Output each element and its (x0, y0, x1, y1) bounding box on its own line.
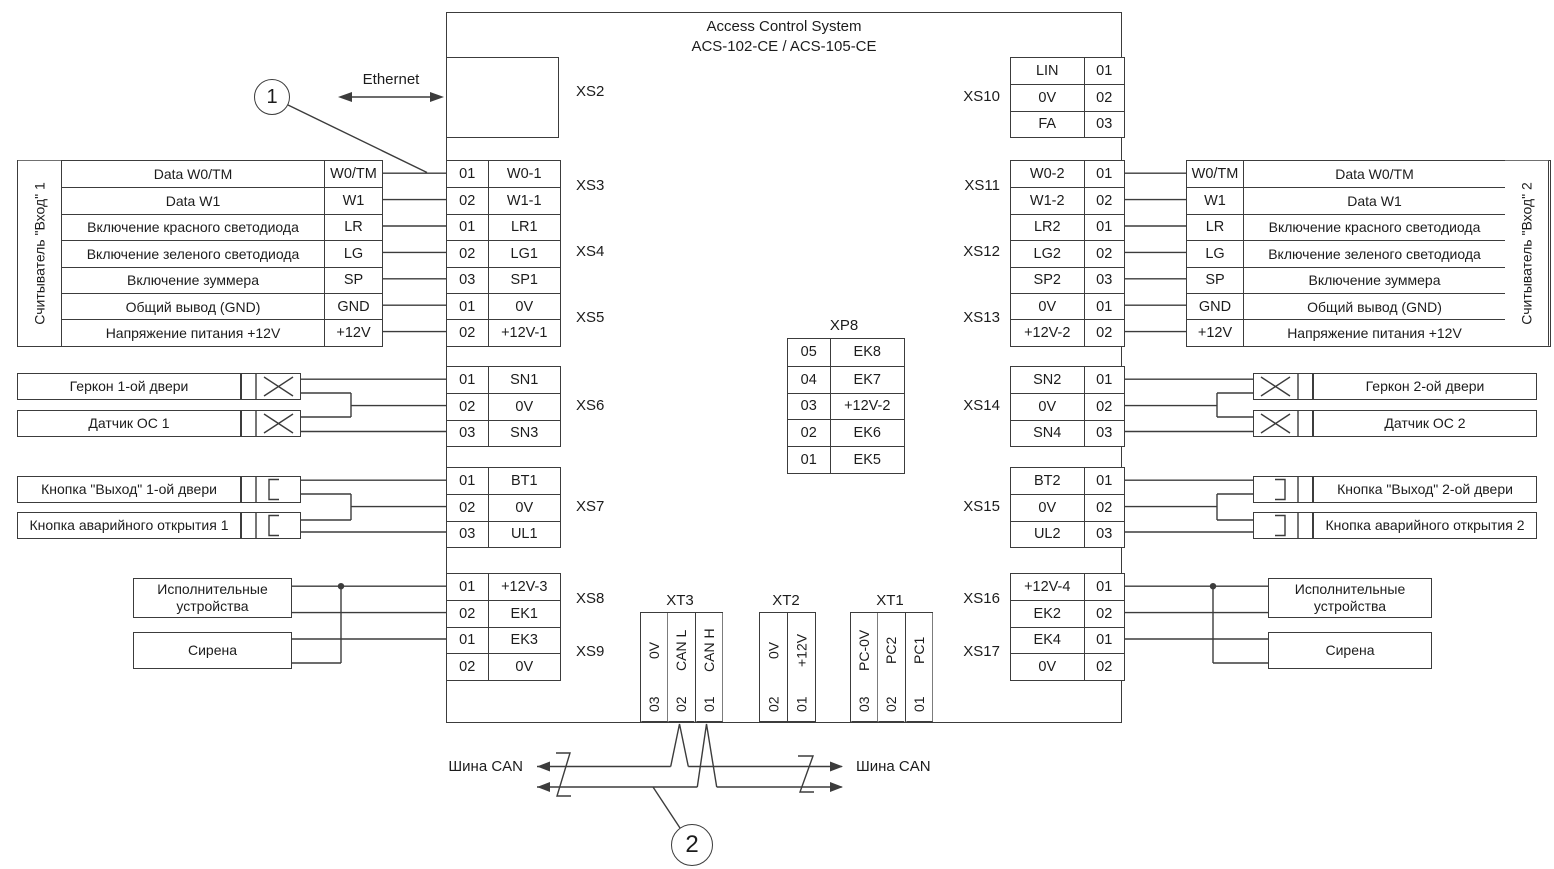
device-box-gerkon: Геркон 2-ой двери (1313, 373, 1537, 400)
device-box-emergency-btn: Кнопка аварийного открытия 2 (1313, 512, 1537, 539)
pin-cell: 02 (788, 420, 830, 446)
reader-row: Включение зеленого светодиодаLG (62, 240, 382, 266)
pin-cell: 03 (447, 268, 488, 293)
signal-cell: 0V (488, 394, 561, 419)
connector-row: 01EK3 (447, 627, 560, 653)
pin-cell: 01 (1084, 628, 1125, 653)
connector-table-xs6: 01SN1020V03SN3 (446, 366, 561, 447)
signal-cell: EK7 (830, 367, 905, 393)
connector-row: 020V (447, 393, 560, 419)
reader-row: W1Data W1 (1187, 187, 1505, 213)
signal-cell: BT2 (1011, 468, 1084, 494)
signal-cell: EK1 (488, 601, 561, 626)
reader-desc-cell: Data W1 (62, 188, 324, 213)
pin-cell: 02 (1084, 241, 1125, 266)
signal-cell: 0V (1011, 294, 1084, 319)
pin-cell: 02 (1084, 654, 1125, 679)
title-line-1: Access Control System (584, 17, 984, 37)
signal-cell: +12V-1 (488, 320, 561, 345)
signal-cell: SN3 (488, 421, 561, 446)
device-box-datchik: Датчик ОС 1 (17, 410, 241, 437)
label-right_connectors-0-name: XS10 (963, 87, 1000, 107)
label-xp8-name: XP8 (764, 316, 924, 336)
signal-cell: W0-1 (488, 161, 561, 187)
signal-cell: W1-2 (1011, 188, 1084, 213)
reader-signal-cell: LR (324, 215, 382, 240)
xt-signal-cell: PC-0V (851, 613, 877, 687)
xt-signal-cell: PC1 (906, 613, 932, 687)
connector-row: LG202 (1011, 240, 1124, 266)
signal-cell: EK5 (830, 447, 905, 473)
connector-row: 02EK6 (788, 419, 904, 446)
reader-desc-cell: Включение красного светодиода (62, 215, 324, 240)
reader-desc-cell: Общий вывод (GND) (62, 294, 324, 319)
reader-signal-cell: +12V (324, 320, 382, 345)
signal-cell: SP1 (488, 268, 561, 293)
reader-signal-cell: W0/TM (1187, 161, 1243, 187)
pin-cell: 03 (788, 394, 830, 420)
signal-cell: 0V (1011, 394, 1084, 419)
signal-cell: EK3 (488, 628, 561, 653)
device-box-datchik: Датчик ОС 2 (1313, 410, 1537, 437)
label-left_connectors-0-name: XS3 (576, 176, 604, 196)
reader-signal-cell: W1 (1187, 188, 1243, 213)
pin-cell: 01 (447, 215, 488, 240)
reader-row: Напряжение питания +12V+12V (62, 319, 382, 345)
pin-cell: 05 (788, 339, 830, 366)
connector-row: 05EK8 (788, 339, 904, 366)
reader-row: Включение красного светодиодаLR (62, 214, 382, 240)
connector-row: 01SN1 (447, 367, 560, 393)
diagram-title: Access Control System ACS-102-CE / ACS-1… (584, 17, 984, 57)
reader-desc-cell: Data W0/TM (62, 161, 324, 187)
pin-cell: 02 (447, 241, 488, 266)
signal-cell: +12V-2 (1011, 320, 1084, 345)
signal-cell: 0V (488, 294, 561, 319)
reader-desc-cell: Включение красного светодиода (1243, 215, 1505, 240)
label-xs2_label: XS2 (576, 82, 604, 102)
connector-row: 0V02 (1011, 653, 1124, 679)
signal-cell: 0V (1011, 495, 1084, 520)
reader-desc-cell: Data W1 (1243, 188, 1505, 213)
pin-cell: 01 (1084, 367, 1125, 393)
pin-cell: 02 (1084, 188, 1125, 213)
callout-1-number: 1 (266, 86, 277, 109)
connector-table-xs15: BT2010V02UL203 (1010, 467, 1125, 548)
xt-signal-cell: 0V (760, 613, 787, 687)
connector-table-xs10: LIN010V02FA03 (1010, 57, 1125, 138)
sensor-1-symbol-box (241, 410, 301, 437)
reader-signal-cell: SP (1187, 268, 1243, 293)
pin-cell: 03 (447, 421, 488, 446)
connector-row: 010V (447, 293, 560, 319)
connector-table-xp8: 05EK804EK703+12V-202EK601EK5 (787, 338, 905, 474)
label-ethernet_label: Ethernet (311, 70, 471, 90)
connector-row: 03SN3 (447, 420, 560, 446)
connector-row: 020V (447, 494, 560, 520)
label-can_bus_right: Шина CAN (856, 757, 931, 777)
xt-signal-cell: +12V (788, 613, 815, 687)
signal-cell: +12V-3 (488, 574, 561, 600)
label-xt-2-name: XT1 (810, 591, 970, 611)
signal-cell: 0V (488, 495, 561, 520)
label-can_bus_left: Шина CAN (448, 757, 523, 777)
sensor-2-symbol-box (1253, 410, 1313, 437)
reader-signal-cell: GND (1187, 294, 1243, 319)
reader-desc-cell: Напряжение питания +12V (1243, 320, 1505, 345)
connector-row: 02W1-1 (447, 187, 560, 213)
title-line-2: ACS-102-CE / ACS-105-CE (584, 37, 984, 57)
door-contact-1-symbol-box (241, 373, 301, 400)
pin-cell: 02 (1084, 495, 1125, 520)
reader-signal-cell: LR (1187, 215, 1243, 240)
connector-row: 03SP1 (447, 267, 560, 293)
pin-cell: 02 (447, 495, 488, 520)
door-contact-2-symbol-box (1253, 373, 1313, 400)
pin-cell: 03 (1084, 112, 1125, 137)
signal-cell: LR2 (1011, 215, 1084, 240)
label-right_connectors-7-name: XS17 (963, 642, 1000, 662)
xt-column: 0V02 (760, 613, 787, 722)
connector-table-xs8-xs9: 01+12V-302EK101EK3020V (446, 573, 561, 681)
label-right_connectors-2-name: XS12 (963, 242, 1000, 262)
signal-cell: UL1 (488, 522, 561, 547)
connector-row: UL203 (1011, 521, 1124, 547)
pin-cell: 03 (1084, 522, 1125, 547)
reader-table-1: Считыватель "Вход" 1Data W0/TMW0/TMData … (17, 160, 383, 347)
pin-cell: 02 (1084, 394, 1125, 419)
reader-row: Data W0/TMW0/TM (62, 161, 382, 187)
reader-desc-cell: Включение зеленого светодиода (1243, 241, 1505, 266)
signal-cell: LIN (1011, 58, 1084, 84)
signal-cell: SN4 (1011, 421, 1084, 446)
pin-cell: 01 (1084, 468, 1125, 494)
xt-pin-cell: 02 (668, 687, 694, 722)
xt-signal-cell: 0V (641, 613, 667, 687)
signal-cell: 0V (1011, 85, 1084, 110)
exit-button-2-symbol-box (1253, 476, 1313, 503)
reader-desc-cell: Включение зуммера (62, 268, 324, 293)
reader-row: Data W1W1 (62, 187, 382, 213)
connector-row: 0V02 (1011, 393, 1124, 419)
reader-desc-cell: Включение зуммера (1243, 268, 1505, 293)
xt-pin-cell: 01 (696, 687, 722, 722)
connector-row: +12V-401 (1011, 574, 1124, 600)
connector-row: BT201 (1011, 468, 1124, 494)
reader-row: GNDОбщий вывод (GND) (1187, 293, 1505, 319)
connector-row: 02EK1 (447, 600, 560, 626)
callout-2: 2 (671, 824, 713, 866)
exit-button-1-symbol-box (241, 476, 301, 503)
signal-cell: EK8 (830, 339, 905, 366)
emergency-button-2-symbol-box (1253, 512, 1313, 539)
reader-row: LGВключение зеленого светодиода (1187, 240, 1505, 266)
xt-signal-cell: CAN H (696, 613, 722, 687)
xt-table-xt2: 0V02+12V01 (759, 612, 816, 723)
device-box-actuators: Исполнительные устройства (133, 578, 292, 618)
device-box-exit-btn: Кнопка "Выход" 1-ой двери (17, 476, 241, 503)
connector-row: 04EK7 (788, 366, 904, 393)
pin-cell: 01 (447, 161, 488, 187)
connector-table-xs16-xs17: +12V-401EK202EK4010V02 (1010, 573, 1125, 681)
reader-desc-cell: Напряжение питания +12V (62, 320, 324, 345)
pin-cell: 01 (447, 294, 488, 319)
signal-cell: W0-2 (1011, 161, 1084, 187)
pin-cell: 03 (447, 522, 488, 547)
label-right_connectors-4-name: XS14 (963, 396, 1000, 416)
xt-pin-cell: 02 (760, 687, 787, 722)
xt-pin-cell: 01 (906, 687, 932, 722)
signal-cell: LG2 (1011, 241, 1084, 266)
pin-cell: 02 (1084, 601, 1125, 626)
reader-side-label: Считыватель "Вход" 2 (1505, 161, 1549, 346)
pin-cell: 01 (447, 367, 488, 393)
reader-row: W0/TMData W0/TM (1187, 161, 1505, 187)
callout-1: 1 (254, 79, 290, 115)
reader-signal-cell: GND (324, 294, 382, 319)
connector-row: LR201 (1011, 214, 1124, 240)
reader-rows: Data W0/TMW0/TMData W1W1Включение красно… (61, 161, 382, 346)
signal-cell: EK4 (1011, 628, 1084, 653)
wiring-diagram: Access Control System ACS-102-CE / ACS-1… (0, 0, 1554, 869)
device-box-actuators: Исполнительные устройства (1268, 578, 1432, 618)
reader-row: +12VНапряжение питания +12V (1187, 319, 1505, 345)
xt-pin-cell: 03 (851, 687, 877, 722)
connector-table-xs14: SN2010V02SN403 (1010, 366, 1125, 447)
connector-row: LIN01 (1011, 58, 1124, 84)
connector-row: 0V01 (1011, 293, 1124, 319)
reader-row: LRВключение красного светодиода (1187, 214, 1505, 240)
device-box-siren: Сирена (1268, 632, 1432, 669)
reader-row: Включение зуммераSP (62, 267, 382, 293)
xt-column: PC202 (877, 613, 904, 722)
reader-row: SPВключение зуммера (1187, 267, 1505, 293)
callout-2-number: 2 (685, 831, 698, 859)
connector-row: 0V02 (1011, 494, 1124, 520)
pin-cell: 02 (447, 188, 488, 213)
reader-table-2: W0/TMData W0/TMW1Data W1LRВключение крас… (1186, 160, 1551, 347)
reader-desc-cell: Общий вывод (GND) (1243, 294, 1505, 319)
device-box-gerkon: Геркон 1-ой двери (17, 373, 241, 400)
pin-cell: 02 (447, 320, 488, 345)
connector-row: 01EK5 (788, 446, 904, 473)
connector-row: 03UL1 (447, 521, 560, 547)
xt-column: CAN H01 (695, 613, 722, 722)
pin-cell: 01 (447, 628, 488, 653)
reader-side-label: Считыватель "Вход" 1 (18, 161, 61, 346)
signal-cell: BT1 (488, 468, 561, 494)
signal-cell: +12V-2 (830, 394, 905, 420)
connector-table-xs7: 01BT1020V03UL1 (446, 467, 561, 548)
reader-signal-cell: W1 (324, 188, 382, 213)
label-right_connectors-5-name: XS15 (963, 497, 1000, 517)
connector-row: EK401 (1011, 627, 1124, 653)
label-left_connectors-3-name: XS6 (576, 396, 604, 416)
pin-cell: 04 (788, 367, 830, 393)
xt-table-xt1: PC-0V03PC202PC101 (850, 612, 933, 723)
connector-row: 01+12V-3 (447, 574, 560, 600)
reader-signal-cell: LG (324, 241, 382, 266)
connector-row: 01W0-1 (447, 161, 560, 187)
signal-cell: 0V (1011, 654, 1084, 679)
reader-desc-cell: Data W0/TM (1243, 161, 1505, 187)
pin-cell: 01 (788, 447, 830, 473)
label-right_connectors-3-name: XS13 (963, 308, 1000, 328)
reader-signal-cell: W0/TM (324, 161, 382, 187)
connector-row: 02+12V-1 (447, 319, 560, 345)
signal-cell: 0V (488, 654, 561, 679)
connector-row: 03+12V-2 (788, 393, 904, 420)
pin-cell: 02 (1084, 320, 1125, 345)
xt-column: PC-0V03 (851, 613, 877, 722)
pin-cell: 01 (447, 468, 488, 494)
connector-row: 020V (447, 653, 560, 679)
label-left_connectors-1-name: XS4 (576, 242, 604, 262)
pin-cell: 01 (1084, 294, 1125, 319)
xt-column: PC101 (905, 613, 932, 722)
pin-cell: 02 (447, 654, 488, 679)
signal-cell: FA (1011, 112, 1084, 137)
connector-row: FA03 (1011, 111, 1124, 137)
signal-cell: UL2 (1011, 522, 1084, 547)
pin-cell: 02 (1084, 85, 1125, 110)
xt-pin-cell: 02 (878, 687, 904, 722)
pin-cell: 01 (1084, 58, 1125, 84)
signal-cell: +12V-4 (1011, 574, 1084, 600)
pin-cell: 01 (1084, 161, 1125, 187)
connector-row: 01BT1 (447, 468, 560, 494)
signal-cell: LG1 (488, 241, 561, 266)
signal-cell: SN1 (488, 367, 561, 393)
pin-cell: 01 (1084, 215, 1125, 240)
signal-cell: EK6 (830, 420, 905, 446)
connector-table-xs3-xs5: 01W0-102W1-101LR102LG103SP1010V02+12V-1 (446, 160, 561, 347)
connector-row: SP203 (1011, 267, 1124, 293)
connector-row: 01LR1 (447, 214, 560, 240)
xt-signal-cell: PC2 (878, 613, 904, 687)
xt-pin-cell: 03 (641, 687, 667, 722)
label-left_connectors-4-name: XS7 (576, 497, 604, 517)
signal-cell: LR1 (488, 215, 561, 240)
connector-table-xs11-xs13: W0-201W1-202LR201LG202SP2030V01+12V-202 (1010, 160, 1125, 347)
reader-signal-cell: +12V (1187, 320, 1243, 345)
pin-cell: 01 (1084, 574, 1125, 600)
emergency-button-1-symbol-box (241, 512, 301, 539)
connector-row: 0V02 (1011, 84, 1124, 110)
xt-signal-cell: CAN L (668, 613, 694, 687)
pin-cell: 03 (1084, 268, 1125, 293)
xt-table-xt3: 0V03CAN L02CAN H01 (640, 612, 723, 723)
reader-desc-cell: Включение зеленого светодиода (62, 241, 324, 266)
pin-cell: 01 (447, 574, 488, 600)
connector-row: SN403 (1011, 420, 1124, 446)
xt-pin-cell: 01 (788, 687, 815, 722)
signal-cell: SP2 (1011, 268, 1084, 293)
pin-cell: 02 (447, 601, 488, 626)
connector-row: SN201 (1011, 367, 1124, 393)
signal-cell: W1-1 (488, 188, 561, 213)
xt-column: CAN L02 (667, 613, 694, 722)
connector-row: +12V-202 (1011, 319, 1124, 345)
xt-column: +12V01 (787, 613, 815, 722)
signal-cell: SN2 (1011, 367, 1084, 393)
device-box-exit-btn: Кнопка "Выход" 2-ой двери (1313, 476, 1537, 503)
label-left_connectors-2-name: XS5 (576, 308, 604, 328)
device-box-emergency-btn: Кнопка аварийного открытия 1 (17, 512, 241, 539)
pin-cell: 02 (447, 394, 488, 419)
pin-cell: 03 (1084, 421, 1125, 446)
reader-signal-cell: SP (324, 268, 382, 293)
label-right_connectors-1-name: XS11 (964, 176, 1000, 196)
connector-row: 02LG1 (447, 240, 560, 266)
reader-row: Общий вывод (GND)GND (62, 293, 382, 319)
connector-row: EK202 (1011, 600, 1124, 626)
connector-row: W1-202 (1011, 187, 1124, 213)
label-left_connectors-6-name: XS9 (576, 642, 604, 662)
reader-signal-cell: LG (1187, 241, 1243, 266)
reader-rows: W0/TMData W0/TMW1Data W1LRВключение крас… (1187, 161, 1505, 346)
device-box-siren: Сирена (133, 632, 292, 669)
xt-column: 0V03 (641, 613, 667, 722)
signal-cell: EK2 (1011, 601, 1084, 626)
connector-row: W0-201 (1011, 161, 1124, 187)
